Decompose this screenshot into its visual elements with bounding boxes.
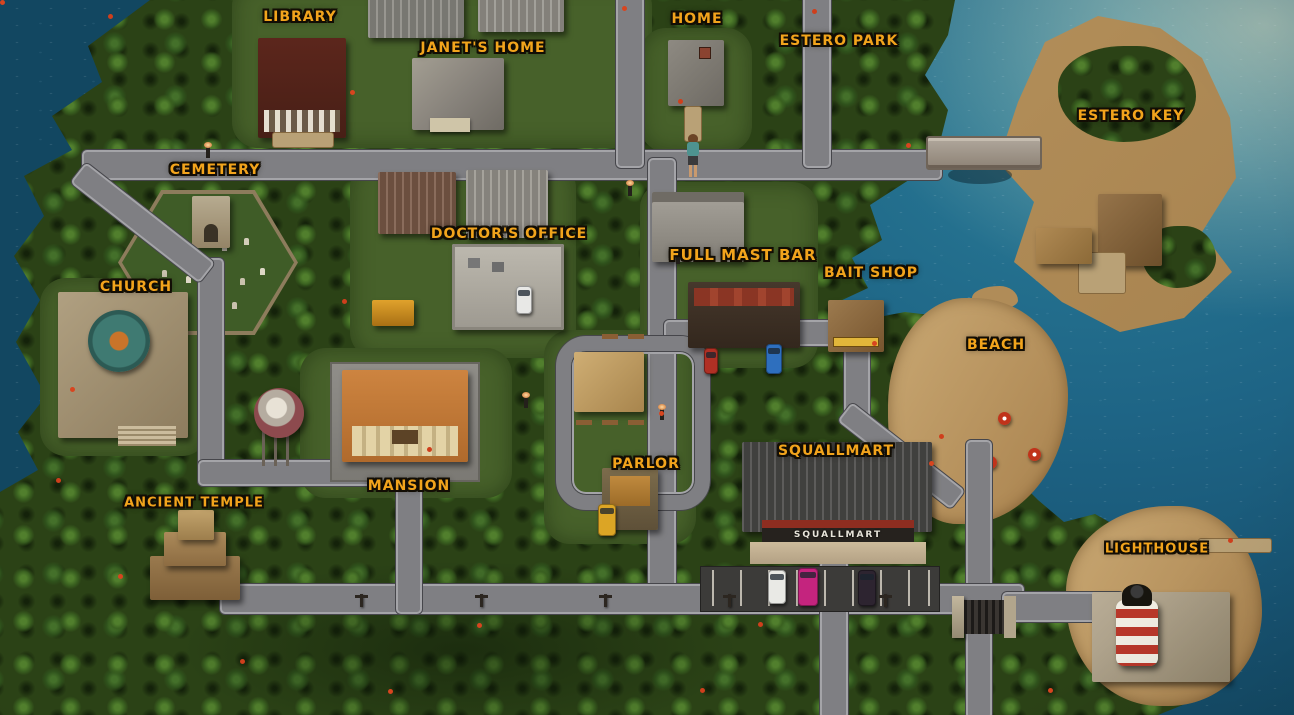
map-label-beach[interactable]: BEACH	[967, 337, 1025, 353]
player-marker-shirt	[687, 142, 699, 156]
map-label-ancient-temple[interactable]: ANCIENT TEMPLE	[124, 496, 264, 511]
map-label-lighthouse[interactable]: LIGHTHOUSE	[1105, 542, 1209, 557]
player-marker-shorts	[688, 156, 698, 165]
map-label-parlor[interactable]: PARLOR	[612, 456, 680, 472]
map-label-janets-home[interactable]: JANET'S HOME	[420, 40, 545, 56]
map-label-home[interactable]: HOME	[671, 11, 722, 27]
map-label-library[interactable]: LIBRARY	[263, 9, 337, 25]
map-labels-layer: LIBRARYJANET'S HOMEHOMEESTERO PARKESTERO…	[0, 0, 1294, 715]
map-label-estero-key[interactable]: ESTERO KEY	[1078, 108, 1185, 124]
map-label-full-mast-bar[interactable]: FULL MAST BAR	[669, 246, 816, 264]
map-label-estero-park[interactable]: ESTERO PARK	[780, 33, 899, 49]
map-label-doctors-office[interactable]: DOCTOR'S OFFICE	[431, 226, 587, 242]
map-label-church[interactable]: CHURCH	[100, 279, 172, 295]
map-label-mansion[interactable]: MANSION	[368, 478, 450, 494]
player-marker-legs	[689, 165, 692, 177]
map-label-squallmart[interactable]: SQUALLMART	[778, 443, 894, 459]
game-map: SQUALLMART LIBRARYJANET'S HOMEHOMEESTERO…	[0, 0, 1294, 715]
map-label-bait-shop[interactable]: BAIT SHOP	[824, 265, 918, 281]
map-label-cemetery[interactable]: CEMETERY	[170, 162, 261, 178]
